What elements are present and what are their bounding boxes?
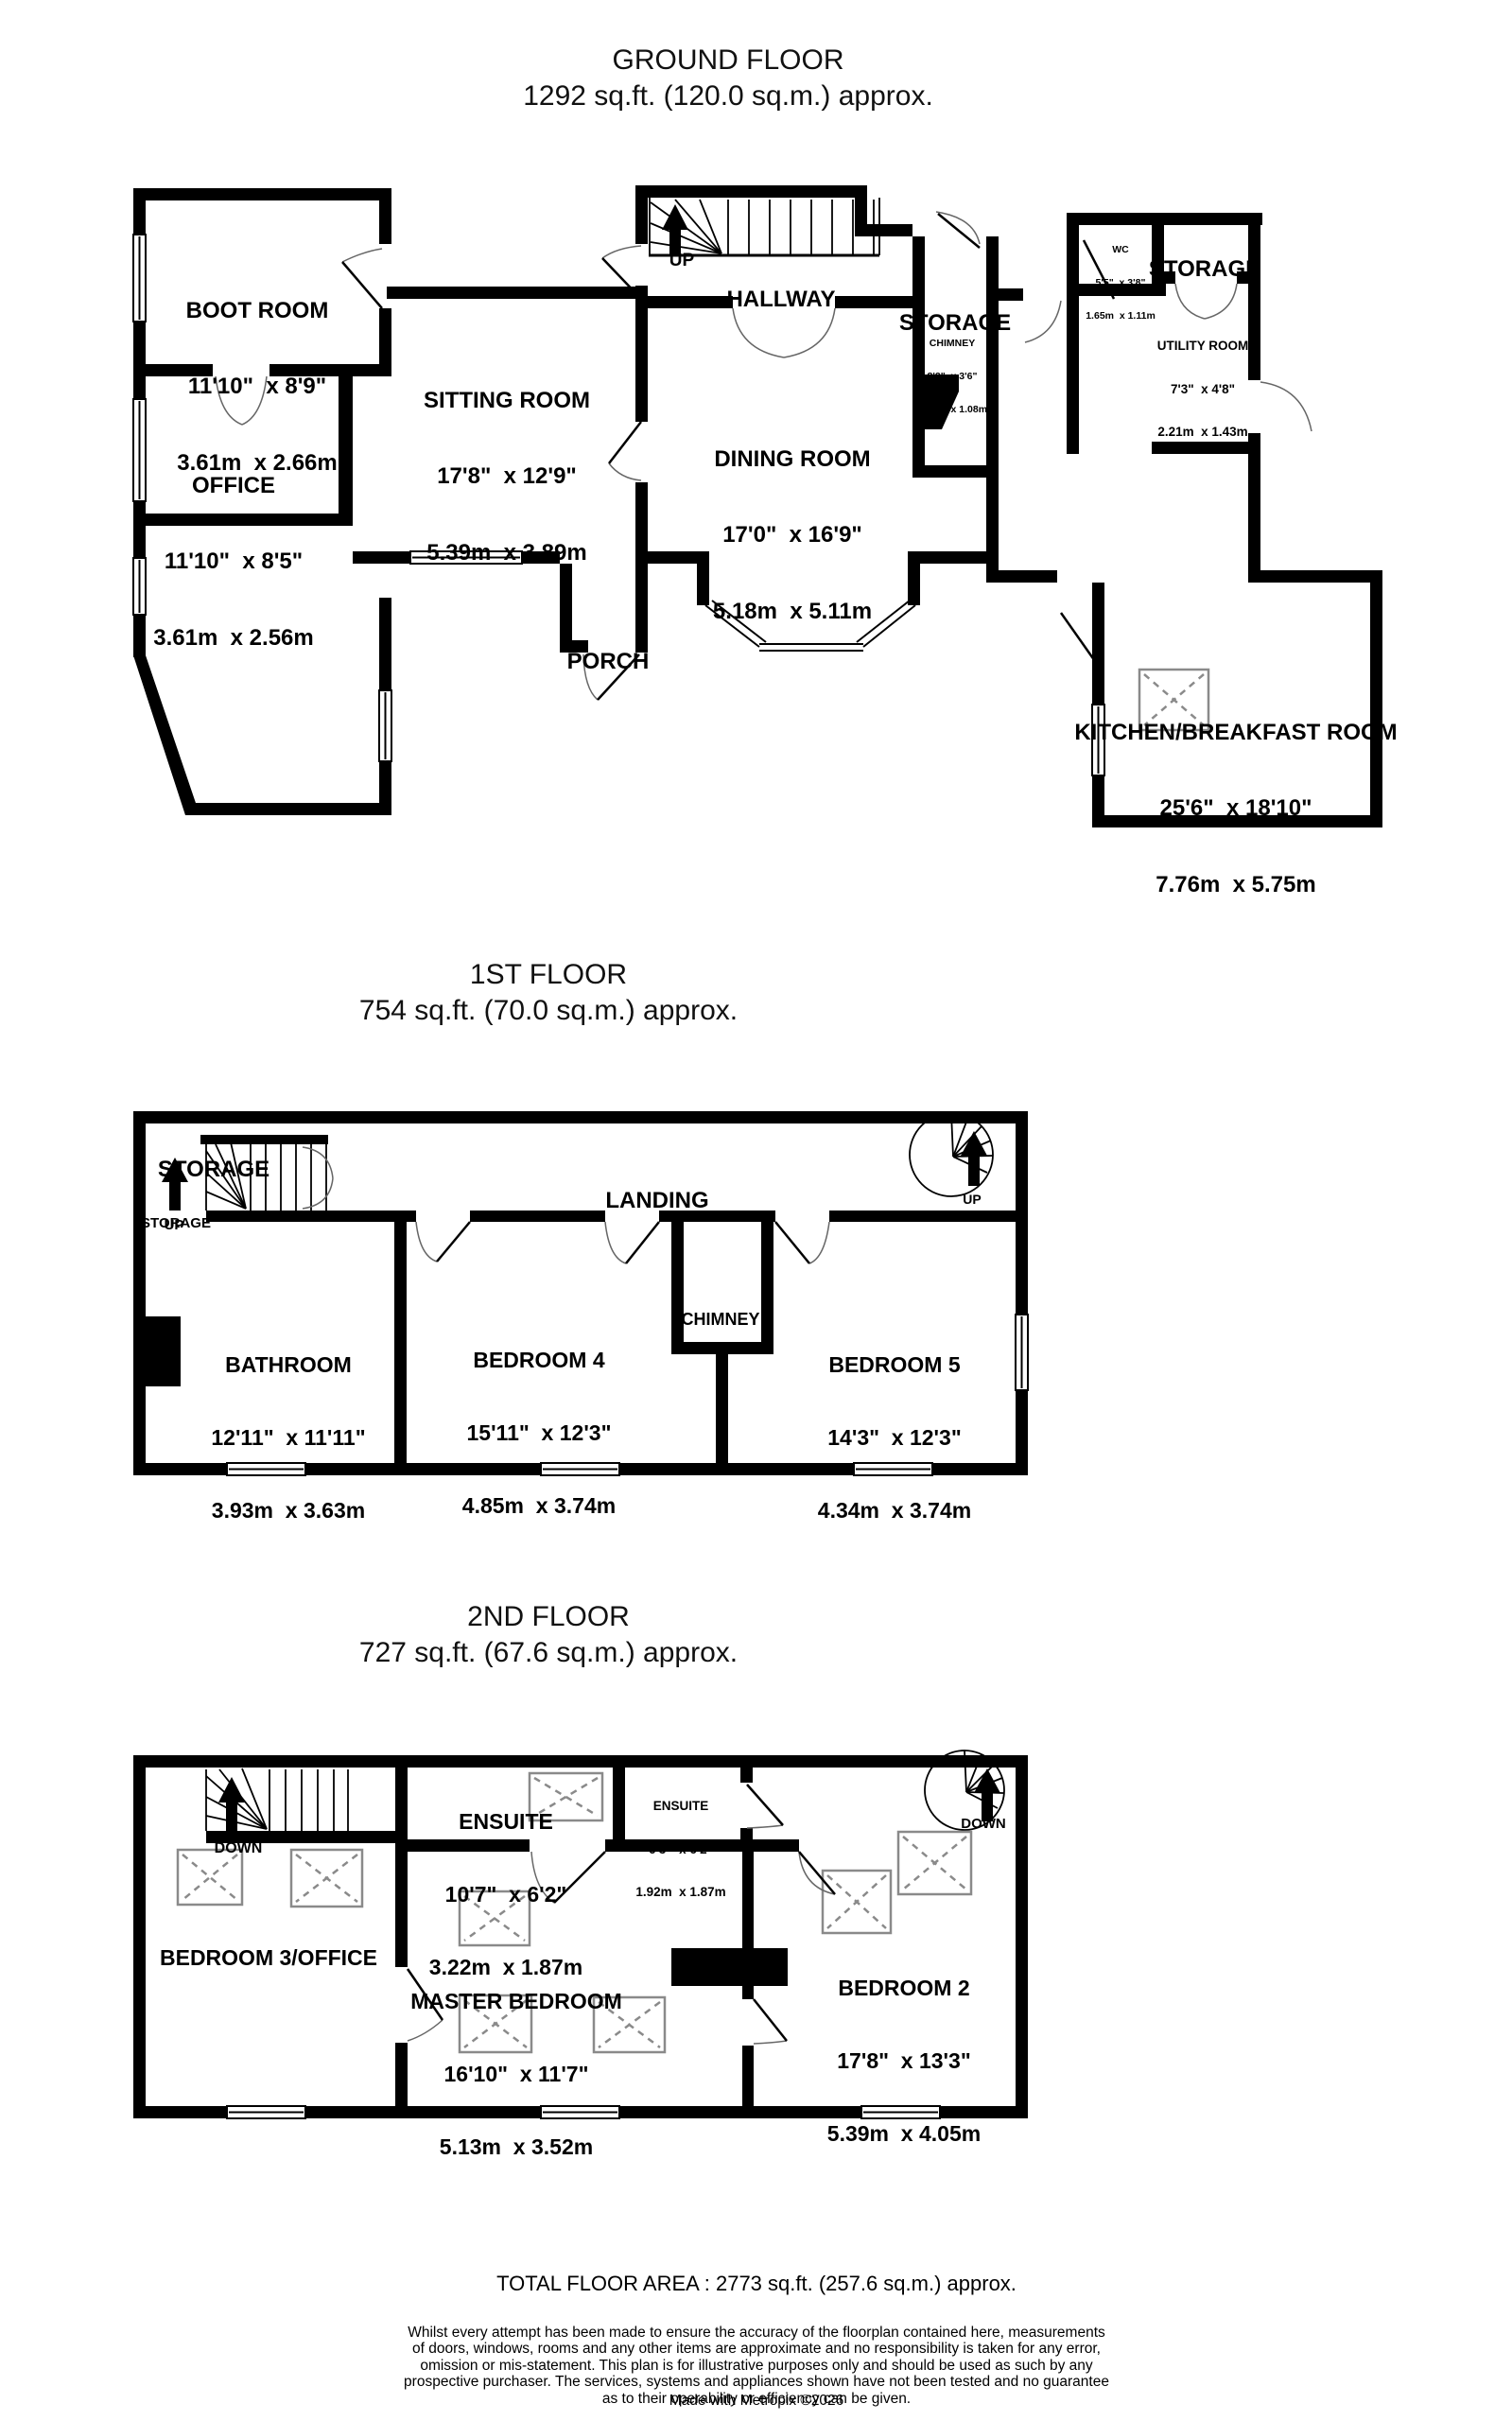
- spiral-down-label: DOWN: [961, 1816, 1006, 1832]
- room-name: BEDROOM 5: [818, 1353, 971, 1378]
- room-label-office: OFFICE 11'10" x 8'5" 3.61m x 2.56m: [153, 423, 313, 677]
- room-name: BEDROOM 2: [827, 1977, 981, 2001]
- room-dims-metric: 2.21m x 1.43m: [1157, 425, 1249, 439]
- room-label-sitting-room: SITTING ROOM 17'8" x 12'9" 5.39m x 3.89m: [424, 338, 590, 592]
- floorplan-page: { "titles": { "ground": {"name": "GROUND…: [0, 0, 1512, 2421]
- room-name: CHIMNEY: [917, 339, 987, 350]
- room-label-bathroom: BATHROOM 12'11" x 11'11" 3.93m x 3.63m: [211, 1304, 365, 1548]
- room-dims-imperial: 7'3" x 4'8": [1157, 382, 1249, 396]
- floor-area: 1292 sq.ft. (120.0 sq.m.) approx.: [523, 78, 933, 114]
- floor-area: 754 sq.ft. (70.0 sq.m.) approx.: [359, 993, 738, 1029]
- room-label-wc: WC 5'5" x 3'8" 1.65m x 1.11m: [1086, 222, 1156, 334]
- credit-text: Made with Metropix ©2026: [669, 2393, 844, 2409]
- stairs-up-label: UP: [669, 251, 694, 271]
- room-name: OFFICE: [153, 474, 313, 499]
- up-text: UP: [669, 251, 694, 270]
- floor-area: 727 sq.ft. (67.6 sq.m.) approx.: [359, 1635, 738, 1671]
- room-dims-imperial: 5'5" x 3'8": [1086, 278, 1156, 289]
- room-label-bedroom3-office: BEDROOM 3/OFFICE: [160, 1897, 377, 1994]
- room-label-storage-small-first: STORAGE: [141, 1184, 211, 1247]
- room-dims-imperial: 6'3" x 6'2": [635, 1842, 725, 1856]
- floor-name: GROUND FLOOR: [523, 43, 933, 78]
- total-floor-area: TOTAL FLOOR AREA : 2773 sq.ft. (257.6 sq…: [496, 2272, 1017, 2296]
- room-dims-metric: 1.65m x 1.11m: [1086, 311, 1156, 322]
- room-name: SITTING ROOM: [424, 389, 590, 414]
- room-name: BEDROOM 4: [462, 1349, 616, 1373]
- credit: Made with Metropix ©2026: [669, 2393, 844, 2410]
- up-text: UP: [963, 1192, 981, 1207]
- room-label-landing: LANDING: [605, 1138, 708, 1240]
- room-name: PORCH: [567, 650, 650, 675]
- room-dims-metric: 5.39m x 3.89m: [424, 541, 590, 566]
- stairs-up-label-first: UP: [165, 1217, 184, 1233]
- room-dims-imperial: 17'8" x 13'3": [827, 2049, 981, 2074]
- spiral-up-label: UP: [963, 1192, 981, 1207]
- room-dims-imperial: 17'8" x 12'9": [424, 464, 590, 490]
- room-label-hallway: HALLWAY: [726, 236, 835, 339]
- room-dims-metric: 5.39m x 4.05m: [827, 2122, 981, 2147]
- room-label-porch: PORCH: [567, 599, 650, 701]
- floor-name: 1ST FLOOR: [359, 957, 738, 993]
- room-dims-metric: 5.18m x 5.11m: [713, 600, 872, 625]
- floor-title-first: 1ST FLOOR 754 sq.ft. (70.0 sq.m.) approx…: [359, 957, 738, 1029]
- room-dims-imperial: 11'10" x 8'9": [177, 374, 337, 400]
- stairs-down-label: DOWN: [215, 1840, 263, 1857]
- room-dims-imperial: 16'10" x 11'7": [410, 2063, 622, 2087]
- room-name: STORAGE: [1149, 257, 1260, 283]
- down-text: DOWN: [215, 1840, 263, 1856]
- up-text: UP: [165, 1217, 184, 1233]
- room-dims-metric: 4.34m x 3.74m: [818, 1499, 971, 1524]
- room-name: HALLWAY: [726, 287, 835, 313]
- room-label-bedroom2: BEDROOM 2 17'8" x 13'3" 5.39m x 4.05m: [827, 1927, 981, 2171]
- room-dims-imperial: 17'0" x 16'9": [713, 523, 872, 549]
- down-text: DOWN: [961, 1816, 1006, 1832]
- room-name: LANDING: [605, 1189, 708, 1214]
- room-dims-metric: 5.13m x 3.52m: [410, 2135, 622, 2160]
- room-name: CHIMNEY: [681, 1310, 759, 1329]
- room-name: DINING ROOM: [713, 447, 872, 473]
- room-name: KITCHEN/BREAKFAST ROOM: [1074, 721, 1397, 746]
- room-label-chimney-first: CHIMNEY: [681, 1272, 759, 1349]
- room-dims-metric: 2.49m x 1.08m: [917, 405, 987, 416]
- room-name: MASTER BEDROOM: [410, 1990, 622, 2014]
- room-dims-imperial: 25'6" x 18'10": [1074, 796, 1397, 822]
- room-dims-imperial: 14'3" x 12'3": [818, 1426, 971, 1451]
- room-name: BATHROOM: [211, 1353, 365, 1378]
- room-name: BEDROOM 3/OFFICE: [160, 1946, 377, 1971]
- room-dims-metric: 3.61m x 2.56m: [153, 626, 313, 652]
- room-name: WC: [1086, 245, 1156, 256]
- room-label-utility-room: UTILITY ROOM 7'3" x 4'8" 2.21m x 1.43m: [1157, 310, 1249, 453]
- room-dims-imperial: 8'2" x 3'6": [917, 372, 987, 383]
- spiral-staircase-icon: [910, 1113, 993, 1196]
- floor-title-second: 2ND FLOOR 727 sq.ft. (67.6 sq.m.) approx…: [359, 1599, 738, 1671]
- room-dims-imperial: 15'11" x 12'3": [462, 1421, 616, 1446]
- room-name: UTILITY ROOM: [1157, 339, 1249, 353]
- room-label-chimney-ground: CHIMNEY 8'2" x 3'6" 2.49m x 1.08m: [917, 316, 987, 427]
- room-dims-metric: 3.93m x 3.63m: [211, 1499, 365, 1524]
- room-dims-metric: 4.85m x 3.74m: [462, 1494, 616, 1519]
- room-name: ENSUITE: [429, 1810, 582, 1835]
- room-name: ENSUITE: [635, 1799, 725, 1813]
- floor-title-ground: GROUND FLOOR 1292 sq.ft. (120.0 sq.m.) a…: [523, 43, 933, 114]
- room-dims-metric: 7.76m x 5.75m: [1074, 873, 1397, 898]
- room-dims-imperial: 12'11" x 11'11": [211, 1426, 365, 1451]
- room-name: BOOT ROOM: [177, 299, 337, 324]
- room-dims-imperial: 11'10" x 8'5": [153, 549, 313, 575]
- room-label-bedroom4: BEDROOM 4 15'11" x 12'3" 4.85m x 3.74m: [462, 1299, 616, 1543]
- room-label-ensuite2: ENSUITE 6'3" x 6'2" 1.92m x 1.87m: [635, 1770, 725, 1913]
- room-label-bedroom5: BEDROOM 5 14'3" x 12'3" 4.34m x 3.74m: [818, 1304, 971, 1548]
- room-label-dining-room: DINING ROOM 17'0" x 16'9" 5.18m x 5.11m: [713, 396, 872, 651]
- room-label-master-bedroom: MASTER BEDROOM 16'10" x 11'7" 5.13m x 3.…: [410, 1941, 622, 2185]
- room-dims-metric: 1.92m x 1.87m: [635, 1885, 725, 1899]
- door-arcs: [303, 1147, 829, 1263]
- total-floor-area-text: TOTAL FLOOR AREA : 2773 sq.ft. (257.6 sq…: [496, 2272, 1017, 2295]
- room-name: STORAGE: [158, 1158, 269, 1183]
- room-label-storage-top-right: STORAGE: [1149, 206, 1260, 308]
- floor-name: 2ND FLOOR: [359, 1599, 738, 1635]
- room-dims-imperial: 10'7" x 6'2": [429, 1883, 582, 1907]
- room-label-kitchen: KITCHEN/BREAKFAST ROOM 25'6" x 18'10" 7.…: [1074, 670, 1397, 924]
